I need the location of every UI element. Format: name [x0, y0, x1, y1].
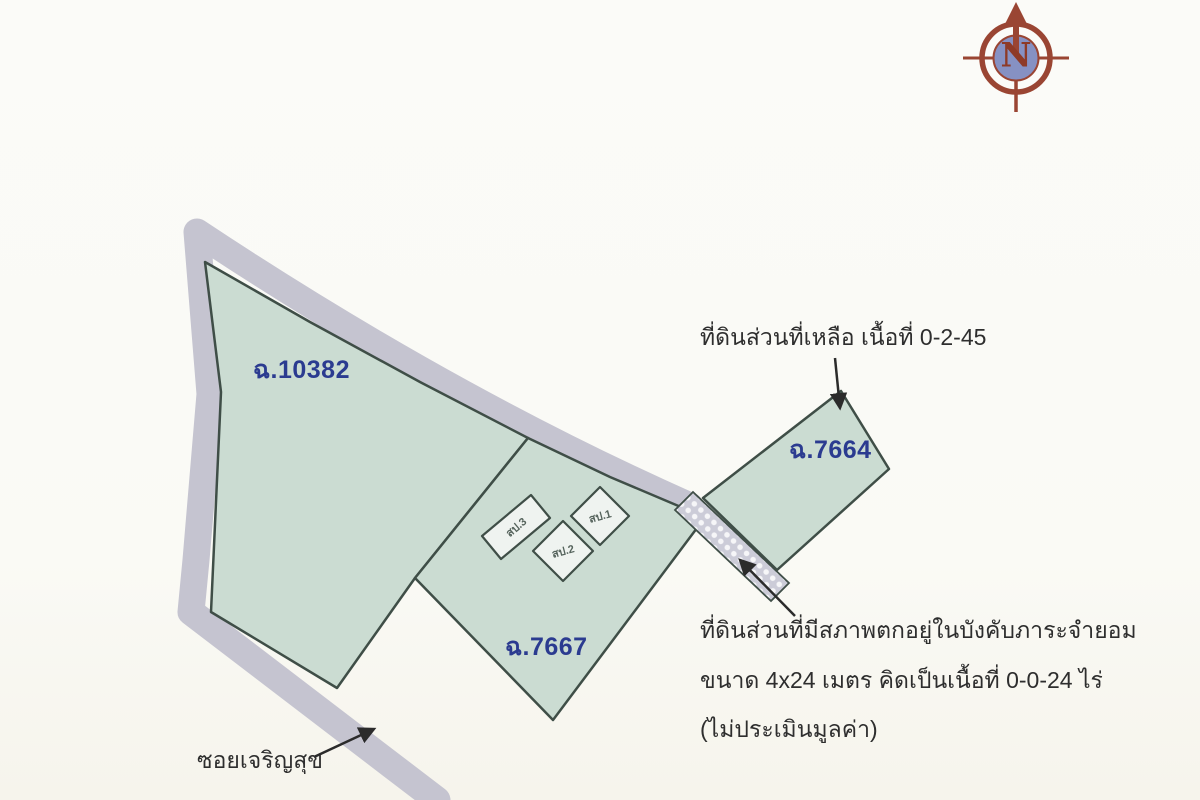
- annotation-servitude-line1: ที่ดินส่วนที่มีสภาพตกอยู่ในบังคับภาระจำย…: [700, 613, 1137, 649]
- survey-map-page: N ฉ.10382 ฉ.7667 ฉ.7664 สป.1 สป.2 สป.3 ท…: [0, 0, 1200, 800]
- annotation-servitude-line3: (ไม่ประเมินมูลค่า): [700, 712, 878, 748]
- annotation-servitude-line2: ขนาด 4x24 เมตร คิดเป็นเนื้อที่ 0-0-24 ไร…: [700, 663, 1103, 699]
- annotation-remaining-land: ที่ดินส่วนที่เหลือ เนื้อที่ 0-2-45: [700, 320, 986, 356]
- parcel-label-10382: ฉ.10382: [253, 350, 350, 390]
- parcel-label-7667: ฉ.7667: [505, 627, 588, 667]
- compass-north-letter: N: [1000, 36, 1031, 76]
- compass-north-arrowhead: [1005, 2, 1027, 24]
- parcel-label-7664: ฉ.7664: [789, 430, 872, 470]
- annotation-road-name: ซอยเจริญสุข: [197, 743, 323, 779]
